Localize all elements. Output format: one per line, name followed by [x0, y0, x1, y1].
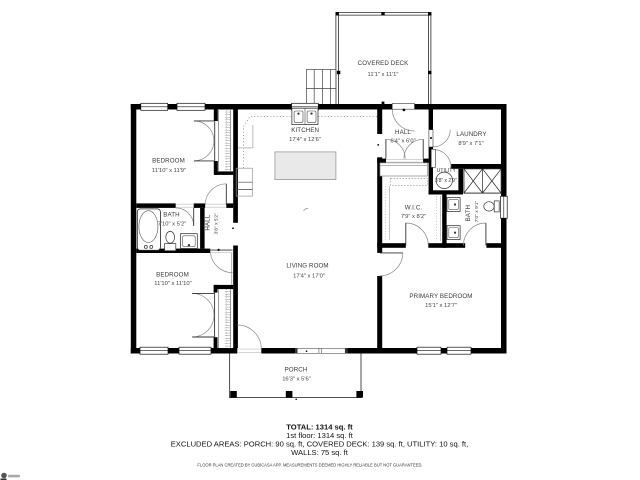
svg-text:FLOOR PLAN CREATED BY CUBICASA: FLOOR PLAN CREATED BY CUBICASA APP. MEAS…	[197, 462, 422, 467]
svg-text:BEDROOM: BEDROOM	[152, 158, 185, 165]
svg-text:HALL: HALL	[204, 214, 211, 230]
svg-text:7'10" x 5'2": 7'10" x 5'2"	[158, 222, 187, 228]
svg-text:PRIMARY BEDROOM: PRIMARY BEDROOM	[409, 293, 472, 300]
svg-text:8'9" x 7'1": 8'9" x 7'1"	[458, 141, 483, 147]
svg-text:HALL: HALL	[395, 129, 411, 136]
svg-text:7'9" x 8'2": 7'9" x 8'2"	[401, 214, 426, 220]
svg-text:17'4" x 17'0": 17'4" x 17'0"	[293, 274, 325, 280]
svg-text:PORCH: PORCH	[285, 367, 308, 374]
svg-text:BATH: BATH	[465, 205, 472, 221]
svg-text:LAUNDRY: LAUNDRY	[456, 131, 486, 138]
svg-text:15'1" x 12'7": 15'1" x 12'7"	[425, 303, 457, 309]
svg-text:LIVING ROOM: LIVING ROOM	[286, 263, 328, 270]
svg-text:BATH: BATH	[163, 212, 179, 219]
svg-text:16'3" x 5'6": 16'3" x 5'6"	[282, 377, 311, 383]
svg-text:6'4" x 6'0": 6'4" x 6'0"	[390, 139, 415, 145]
svg-text:3'8" x 2'9": 3'8" x 2'9"	[435, 178, 457, 184]
svg-text:WALLS: 75 sq. ft: WALLS: 75 sq. ft	[291, 448, 349, 457]
svg-text:11'10" x 11'9": 11'10" x 11'9"	[152, 168, 186, 174]
svg-text:UTILITY: UTILITY	[437, 168, 457, 174]
svg-text:11'1" x 11'1": 11'1" x 11'1"	[368, 72, 399, 78]
svg-text:BEDROOM: BEDROOM	[156, 272, 189, 279]
svg-text:W.I.C.: W.I.C.	[405, 205, 423, 212]
svg-text:17'4" x 12'6": 17'4" x 12'6"	[289, 137, 321, 143]
svg-text:7'0" x 9'1": 7'0" x 9'1"	[474, 201, 480, 223]
svg-text:KITCHEN: KITCHEN	[291, 127, 319, 134]
svg-text:COVERED DECK: COVERED DECK	[358, 60, 409, 67]
svg-text:11'10" x 11'10": 11'10" x 11'10"	[154, 281, 191, 287]
svg-text:3'8" x 5'2": 3'8" x 5'2"	[214, 213, 220, 235]
